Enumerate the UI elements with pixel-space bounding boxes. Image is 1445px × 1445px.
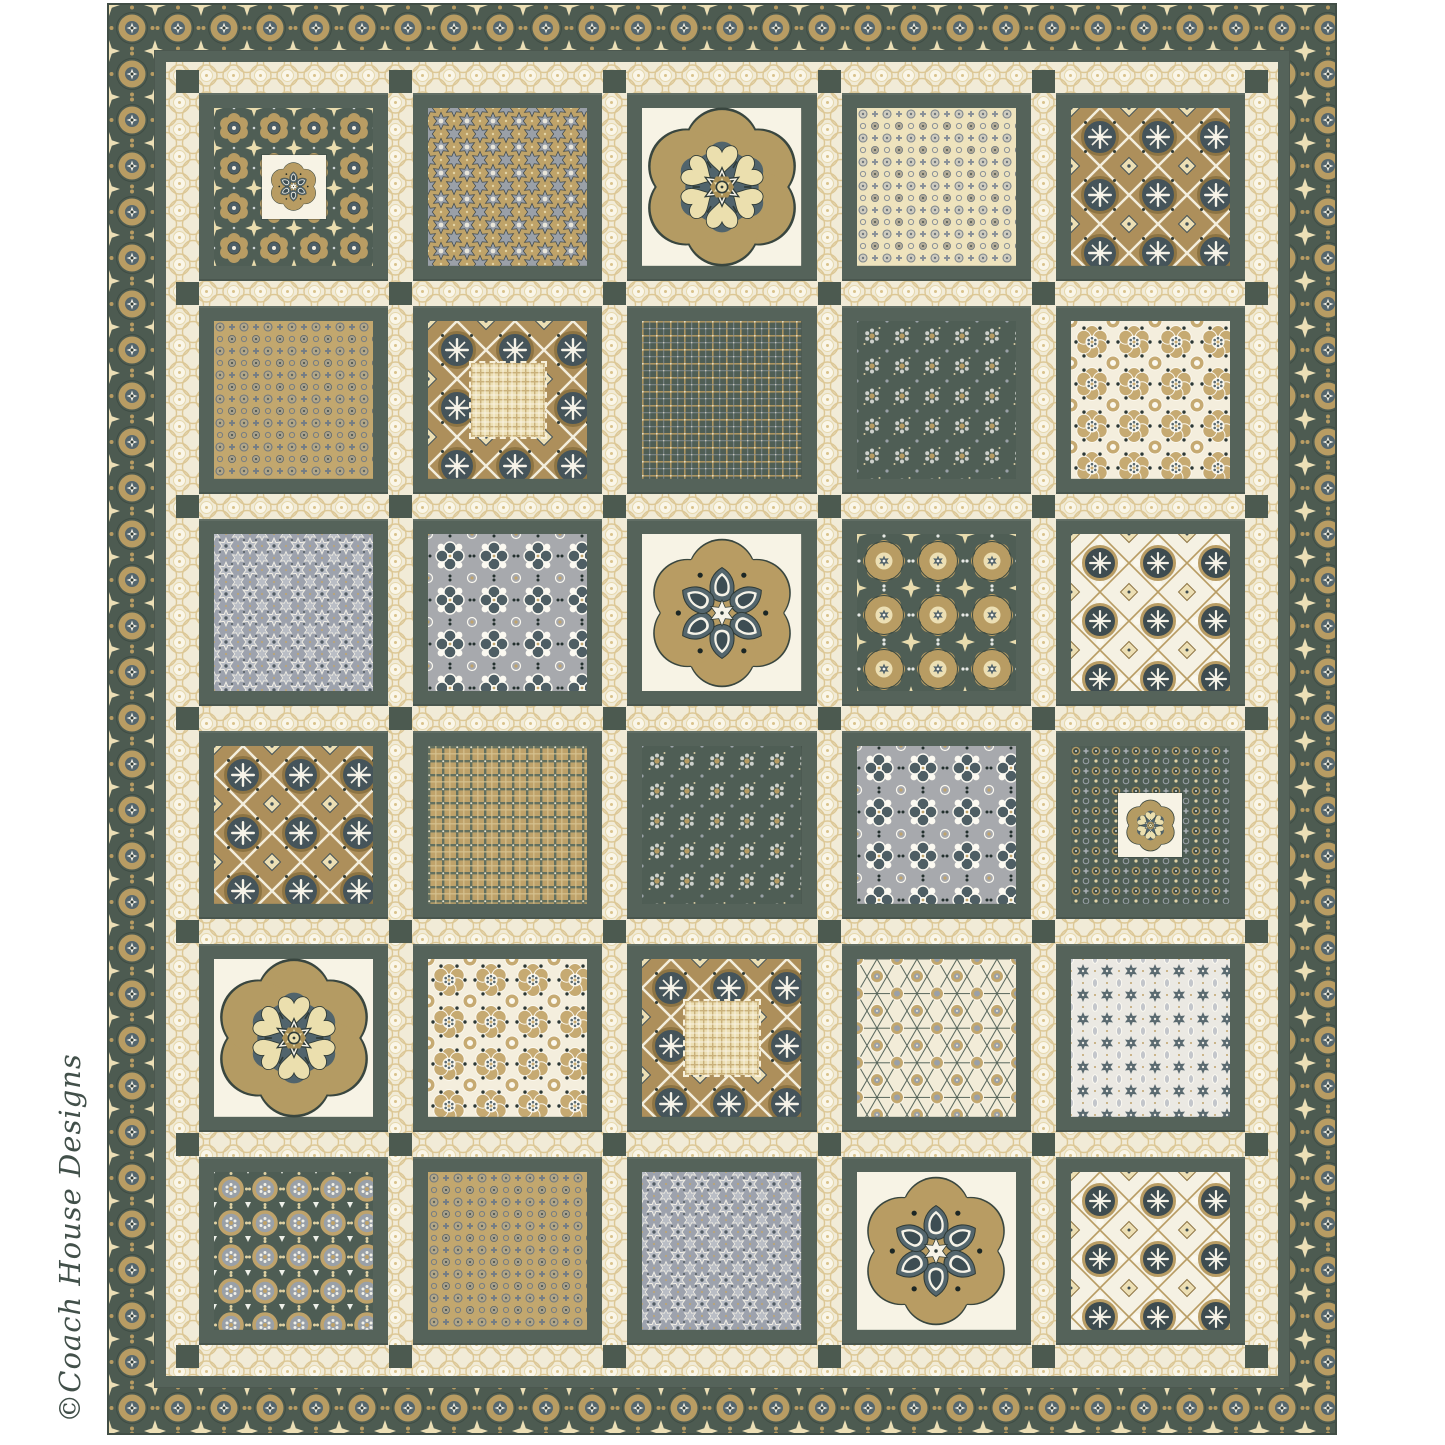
sashing-cornerstone <box>602 281 627 306</box>
sashing-cornerstone <box>1245 919 1278 944</box>
sashing-cornerstone <box>817 706 842 731</box>
sashing-cornerstone <box>1245 281 1278 306</box>
quilt-block-r5c1-medallion-cream <box>199 944 388 1132</box>
quilt-block-r4c5-green-circle-dots <box>1056 731 1245 919</box>
sashing-cornerstone <box>817 1132 842 1157</box>
sashing-cornerstone <box>166 706 199 731</box>
sashing-cornerstone <box>388 62 413 93</box>
mini-seed-medallion-panel <box>262 155 326 219</box>
sashing-cornerstone <box>817 62 842 93</box>
sashing-cornerstone <box>388 706 413 731</box>
quilt-block-r2c1-tan-circle-dots <box>199 306 388 494</box>
quilt-block-r4c4-gray-floral-tile <box>842 731 1031 919</box>
sashing-cornerstone <box>388 281 413 306</box>
sashing-cornerstone <box>166 494 199 519</box>
quilt-block-r5c3-dark-tile <box>627 944 816 1132</box>
quilt-block-r4c2-tan-plaid <box>413 731 602 919</box>
sashing-cornerstone <box>817 281 842 306</box>
quilt-block-r5c4-cream-hex-lattice <box>842 944 1031 1132</box>
quilt-block-r3c1-gray-stars <box>199 519 388 707</box>
sashing-cornerstone <box>1031 62 1056 93</box>
quilt-block-r3c5-light-tile <box>1056 519 1245 707</box>
sashing-cornerstone <box>1245 62 1278 93</box>
sashing-cornerstone <box>388 494 413 519</box>
quilt-block-r3c2-gray-floral-tile <box>413 519 602 707</box>
quilt-block-r1c2-tan-stars <box>413 93 602 281</box>
sashing-cornerstone <box>1031 494 1056 519</box>
page-background: ©Coach House Designs <box>0 0 1445 1445</box>
sashing-cornerstone <box>1245 1345 1278 1376</box>
sashing-cornerstone <box>602 706 627 731</box>
quilt-mockup <box>107 3 1337 1435</box>
plaid-center-patch <box>469 361 547 439</box>
sashing-cornerstone <box>817 1345 842 1376</box>
sashing-cornerstone <box>602 1345 627 1376</box>
quilt-block-r1c1-dark-green-floral <box>199 93 388 281</box>
sashing-cornerstone <box>1031 706 1056 731</box>
sashing-cornerstone <box>388 1345 413 1376</box>
plaid-center-patch <box>683 999 761 1077</box>
sashing-cornerstone <box>1245 706 1278 731</box>
quilt-block-r1c4-cream-circle-dots <box>842 93 1031 281</box>
quilt-block-r6c3-gray-stars <box>627 1157 816 1345</box>
quilt-block-r6c2-tan-circle-dots <box>413 1157 602 1345</box>
quilt-block-r5c2-cream-floral-tile <box>413 944 602 1132</box>
quilt-block-r4c3-green-small-floral <box>627 731 816 919</box>
sashing-cornerstone <box>166 1345 199 1376</box>
sashing-cornerstone <box>602 494 627 519</box>
quilt-block-r3c4-green-kaleidoscope <box>842 519 1031 707</box>
quilt-block-r1c5-dark-tile <box>1056 93 1245 281</box>
designer-credit: ©Coach House Designs <box>53 1053 87 1422</box>
quilt-block-r6c1-green-rings <box>199 1157 388 1345</box>
sashing-cornerstone <box>166 281 199 306</box>
quilt-block-r2c4-green-small-floral <box>842 306 1031 494</box>
sashing-cornerstone <box>817 494 842 519</box>
quilt-interior <box>166 62 1278 1376</box>
quilt-block-r3c3-medallion-cream <box>627 519 816 707</box>
quilt-block-r2c2-dark-tile <box>413 306 602 494</box>
sashing-cornerstone <box>388 919 413 944</box>
quilt-block-r2c5-cream-floral-tile <box>1056 306 1245 494</box>
heart-medallion <box>634 100 810 275</box>
sashing-cornerstone <box>166 62 199 93</box>
sashing-cornerstone <box>1031 919 1056 944</box>
mini-heart-medallion-panel <box>1118 793 1182 857</box>
sashing-cornerstone <box>166 919 199 944</box>
quilt-block-r5c5-gray-diamond-stars <box>1056 944 1245 1132</box>
sashing-cornerstone <box>388 1132 413 1157</box>
sashing-cornerstone <box>1245 494 1278 519</box>
sashing-cornerstone <box>1031 281 1056 306</box>
quilt-block-r2c3-green-plaid <box>627 306 816 494</box>
seed-medallion <box>634 525 810 700</box>
sashing-cornerstone <box>602 1132 627 1157</box>
quilt-grid <box>166 62 1278 1376</box>
sashing-cornerstone <box>602 62 627 93</box>
sashing-cornerstone <box>817 919 842 944</box>
sashing-cornerstone <box>166 1132 199 1157</box>
quilt-block-r4c1-dark-tile <box>199 731 388 919</box>
sashing-cornerstone <box>1245 1132 1278 1157</box>
sashing-cornerstone <box>602 919 627 944</box>
seed-medallion <box>848 1164 1024 1339</box>
quilt-block-r1c3-medallion-cream <box>627 93 816 281</box>
sashing-cornerstone <box>1031 1345 1056 1376</box>
heart-medallion <box>206 951 382 1126</box>
inner-green-band <box>154 50 1290 1388</box>
quilt-block-r6c4-medallion-cream <box>842 1157 1031 1345</box>
quilt-block-r6c5-light-tile <box>1056 1157 1245 1345</box>
sashing-cornerstone <box>1031 1132 1056 1157</box>
